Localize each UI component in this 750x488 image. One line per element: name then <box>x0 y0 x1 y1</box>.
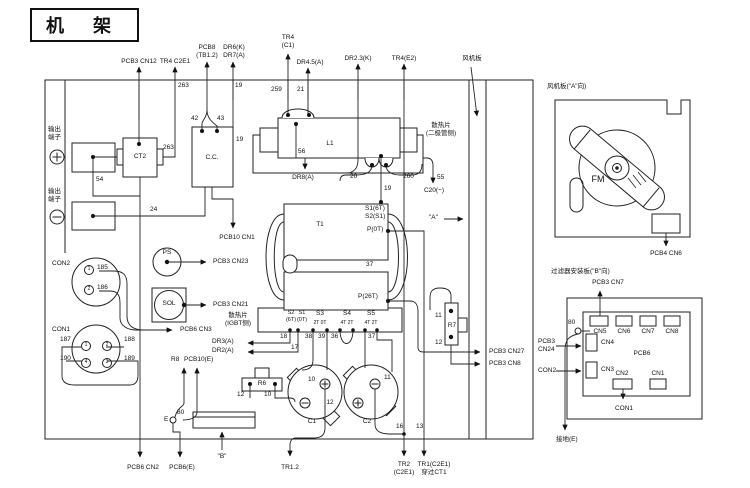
pcb10-cn1-label: PCB10 CN1 <box>219 234 254 242</box>
e-label: E <box>164 416 168 424</box>
con1-label: CON1 <box>52 326 70 334</box>
t1-mid-loop <box>283 255 297 273</box>
r6-label: R6 <box>258 380 266 388</box>
con1-pin-4: 4 <box>81 358 91 368</box>
pcb3-cn8-label: PCB3 CN8 <box>489 360 521 368</box>
con1-pin-2: 2 <box>102 341 112 351</box>
pcb8-tb1-2-label: PCB8 (TB1.2) <box>196 44 218 60</box>
r6-tab <box>255 368 269 378</box>
wire-11-c2: 11 <box>384 374 391 382</box>
t1-s2-col: S2 (6T) <box>286 310 296 323</box>
t1-s3-col: S3 <box>316 310 324 318</box>
cn8-connector <box>664 316 680 326</box>
tr1-label: TR1(C2E1) 穿过CT1 <box>418 461 451 477</box>
fan-panel <box>555 100 690 237</box>
e-ring-terminal <box>170 417 176 423</box>
wire-38: 38 <box>305 333 312 341</box>
output-terminal-minus-label: 输出 端子 <box>48 188 61 204</box>
pcb4-cn6-label: PCB4 CN6 <box>650 250 682 258</box>
dr2-label: DR2(A) <box>212 347 234 355</box>
con1-pin-3: 3 <box>102 358 112 368</box>
t1-bottom-box <box>284 272 388 310</box>
pcb3-cn12-label: PCB3 CN12 <box>121 58 156 66</box>
fan-hub-dot <box>616 167 619 170</box>
r8-label: R8 <box>171 356 179 364</box>
r7-label: R7 <box>448 322 456 330</box>
wire-17: 17 <box>291 344 298 352</box>
pcb6-e-label: PCB6(E) <box>169 464 195 472</box>
fan-board-strip <box>469 80 486 439</box>
busbar-b <box>193 412 255 428</box>
heatsink-diode-label: 散热片 (二极管侧) <box>426 122 456 138</box>
wire-186: 186 <box>97 284 108 292</box>
wire-37-mid: 37 <box>366 261 373 269</box>
cn3-connector <box>586 362 597 378</box>
cn1-connector <box>650 379 666 389</box>
t1-label: T1 <box>316 221 324 229</box>
a-direction-label: "A" <box>429 214 438 222</box>
fm-label: FM <box>592 174 605 185</box>
wire-12-r6: 12 <box>237 391 244 399</box>
ct2-label: CT2 <box>134 153 146 161</box>
cn5-label: CN5 <box>593 328 606 336</box>
wire-10-c1: 10 <box>308 376 315 384</box>
cn2-connector <box>613 379 632 389</box>
wire-37-b: 37 <box>368 333 375 341</box>
wire-187: 187 <box>60 336 71 344</box>
wire-19-t1: 19 <box>384 185 391 193</box>
con2-pin-1: 1 <box>84 265 94 275</box>
arrow-c20 <box>423 158 433 183</box>
l1-left-bracket <box>260 128 278 152</box>
pcb3-cn24-label: PCB3 CN24 <box>538 338 555 354</box>
cn7-connector <box>640 316 656 326</box>
wire-19-top: 19 <box>235 82 242 90</box>
sol-label: SOL <box>162 300 175 308</box>
t1-s3-sub: 2T 0T <box>314 320 327 326</box>
pcb10-e-label: PCB10(E) <box>184 356 213 364</box>
wire-55: 55 <box>437 174 444 182</box>
filter-panel-outline <box>567 298 702 419</box>
c1-label: C1 <box>308 418 316 426</box>
fan-board-callout: 风机板 <box>462 55 482 63</box>
ground-label: 接地(E) <box>556 436 578 444</box>
rack-diagram: 机 架 PCB3 CN12TR4 C2E1PCB8 (TB1.2)DR6(K) … <box>0 0 750 488</box>
wire-39: 39 <box>318 333 325 341</box>
wire-19-cc: 19 <box>236 136 243 144</box>
wire-54: 54 <box>96 176 103 184</box>
wire-185: 185 <box>97 264 108 272</box>
wire-260: 260 <box>403 173 414 181</box>
fan-panel-slot <box>570 178 583 212</box>
pcb3-cn23-label: PCB3 CN23 <box>213 258 248 266</box>
pcb3-cn21-label: PCB3 CN21 <box>213 301 248 309</box>
wire-188: 188 <box>124 336 135 344</box>
t1-s4-col: S4 <box>343 310 351 318</box>
components <box>72 109 467 428</box>
tr2-label: TR2 (C2E1) <box>394 461 415 477</box>
con1-connector <box>72 325 120 373</box>
b-direction-label: "B" <box>218 453 227 461</box>
t1-s5-col: S5 <box>367 310 375 318</box>
arrow-pcb6-e <box>173 423 180 457</box>
wire-18: 18 <box>280 333 287 341</box>
c20-label: C20(−) <box>424 187 444 195</box>
tr4-c2e1-label: TR4 C2E1 <box>160 58 190 66</box>
t1-winding-right <box>388 214 408 300</box>
r7-wire-12: 12 <box>435 339 442 347</box>
wire-20: 20 <box>350 173 357 181</box>
wire-190: 190 <box>60 355 71 363</box>
tr1-2-label: TR1.2 <box>281 464 299 472</box>
t1-s1-6t: S1(6T) <box>365 205 385 213</box>
cn2-b-label: CN2 <box>615 370 628 378</box>
t1-p-0t: P(0T) <box>367 226 383 234</box>
cn4-connector <box>586 334 597 351</box>
wire-10-r6: 10 <box>264 391 271 399</box>
t1-p-26t: P(26T) <box>358 293 378 301</box>
wire-80-filter: 80 <box>568 319 575 327</box>
t1-s2-s1: S2(S1) <box>365 213 385 221</box>
t1-winding-left <box>266 214 284 300</box>
l1-label: L1 <box>326 140 333 148</box>
filter-panel-title: 过滤器安装板("B"向) <box>551 268 610 276</box>
cn5-connector <box>590 316 608 326</box>
cn4-label: CN4 <box>601 339 614 347</box>
pcb6-board-label: PCB6 <box>634 350 651 358</box>
filter-panel <box>567 298 702 419</box>
wire-263-ct2: 263 <box>163 144 174 152</box>
fan-connector-block <box>652 214 680 233</box>
wire-13: 13 <box>416 423 423 431</box>
pcb3-cn7-label: PCB3 CN7 <box>592 279 624 287</box>
wire-259: 259 <box>271 86 282 94</box>
ps-label: PS <box>163 249 172 257</box>
cn6-label: CN6 <box>617 328 630 336</box>
cn3-label: CN3 <box>601 366 614 374</box>
ct2-left-tab <box>117 149 123 165</box>
tr4-e2-label: TR4(E2) <box>392 55 417 63</box>
cn1-b-label: CN1 <box>651 370 664 378</box>
r7-tab <box>458 318 467 332</box>
wire-12-bus: 12 <box>326 399 333 407</box>
wire-56: 56 <box>298 148 305 156</box>
wire-189: 189 <box>124 355 135 363</box>
page-title: 机 架 <box>30 8 139 42</box>
wire-43: 43 <box>217 115 224 123</box>
con2-pin-2: 2 <box>84 285 94 295</box>
dr8-label: DR8(A) <box>292 174 314 182</box>
capacitor-c1 <box>288 365 342 419</box>
wire-42: 42 <box>191 115 198 123</box>
wire-80: 80 <box>177 409 184 417</box>
con1-pin-1: 1 <box>81 341 91 351</box>
pcb6-cn2-label: PCB6 CN2 <box>127 464 159 472</box>
l1-right-bracket <box>400 128 417 152</box>
t1-s5-sub: 4T 2T <box>365 320 378 326</box>
diagram-linework <box>0 0 750 488</box>
t1-s1-col: S1 (0T) <box>297 310 307 323</box>
cn8-label: CN8 <box>665 328 678 336</box>
con2-connector <box>72 258 120 306</box>
dr3-label: DR3(A) <box>212 338 234 346</box>
c2-label: C2 <box>363 418 371 426</box>
t1-s4-sub: 4T 2T <box>341 320 354 326</box>
r7-wire-11: 11 <box>435 312 442 320</box>
cc-label: C.C. <box>206 154 219 162</box>
dr6-dr7-label: DR6(K) DR7(A) <box>223 44 245 60</box>
tr4-c1-label: TR4 (C1) <box>282 34 295 50</box>
dr4-5-label: DR4.5(A) <box>296 59 323 67</box>
igbt-heatsink <box>258 308 402 332</box>
output-terminal-plus-label: 输出 端子 <box>48 126 61 142</box>
con1-right-label: CON1 <box>615 405 633 413</box>
con2-right-label: CON2 <box>538 367 556 375</box>
dr2-3-label: DR2.3(K) <box>344 55 371 63</box>
heatsink-igbt-label: 散热片 (IGBT侧) <box>225 312 251 328</box>
arrow-pcb3-cn8 <box>451 345 480 364</box>
wire-24: 24 <box>150 206 157 214</box>
con2-label: CON2 <box>52 260 70 268</box>
filter-80-ring-terminal <box>575 328 581 334</box>
wire-16: 16 <box>396 423 403 431</box>
arrow-pcb10-cn1 <box>212 187 233 228</box>
wire-21: 21 <box>297 86 304 94</box>
wire-36: 36 <box>331 333 338 341</box>
pcb3-cn27-label: PCB3 CN27 <box>489 348 524 356</box>
fan-panel-title: 风机板("A"向) <box>547 83 586 91</box>
wire-263-top: 263 <box>178 82 189 90</box>
cn6-connector <box>616 316 632 326</box>
arrow-fan-board-callout <box>471 67 477 116</box>
pcb6-cn3-label: PCB6 CN3 <box>180 326 212 334</box>
cn7-label: CN7 <box>641 328 654 336</box>
